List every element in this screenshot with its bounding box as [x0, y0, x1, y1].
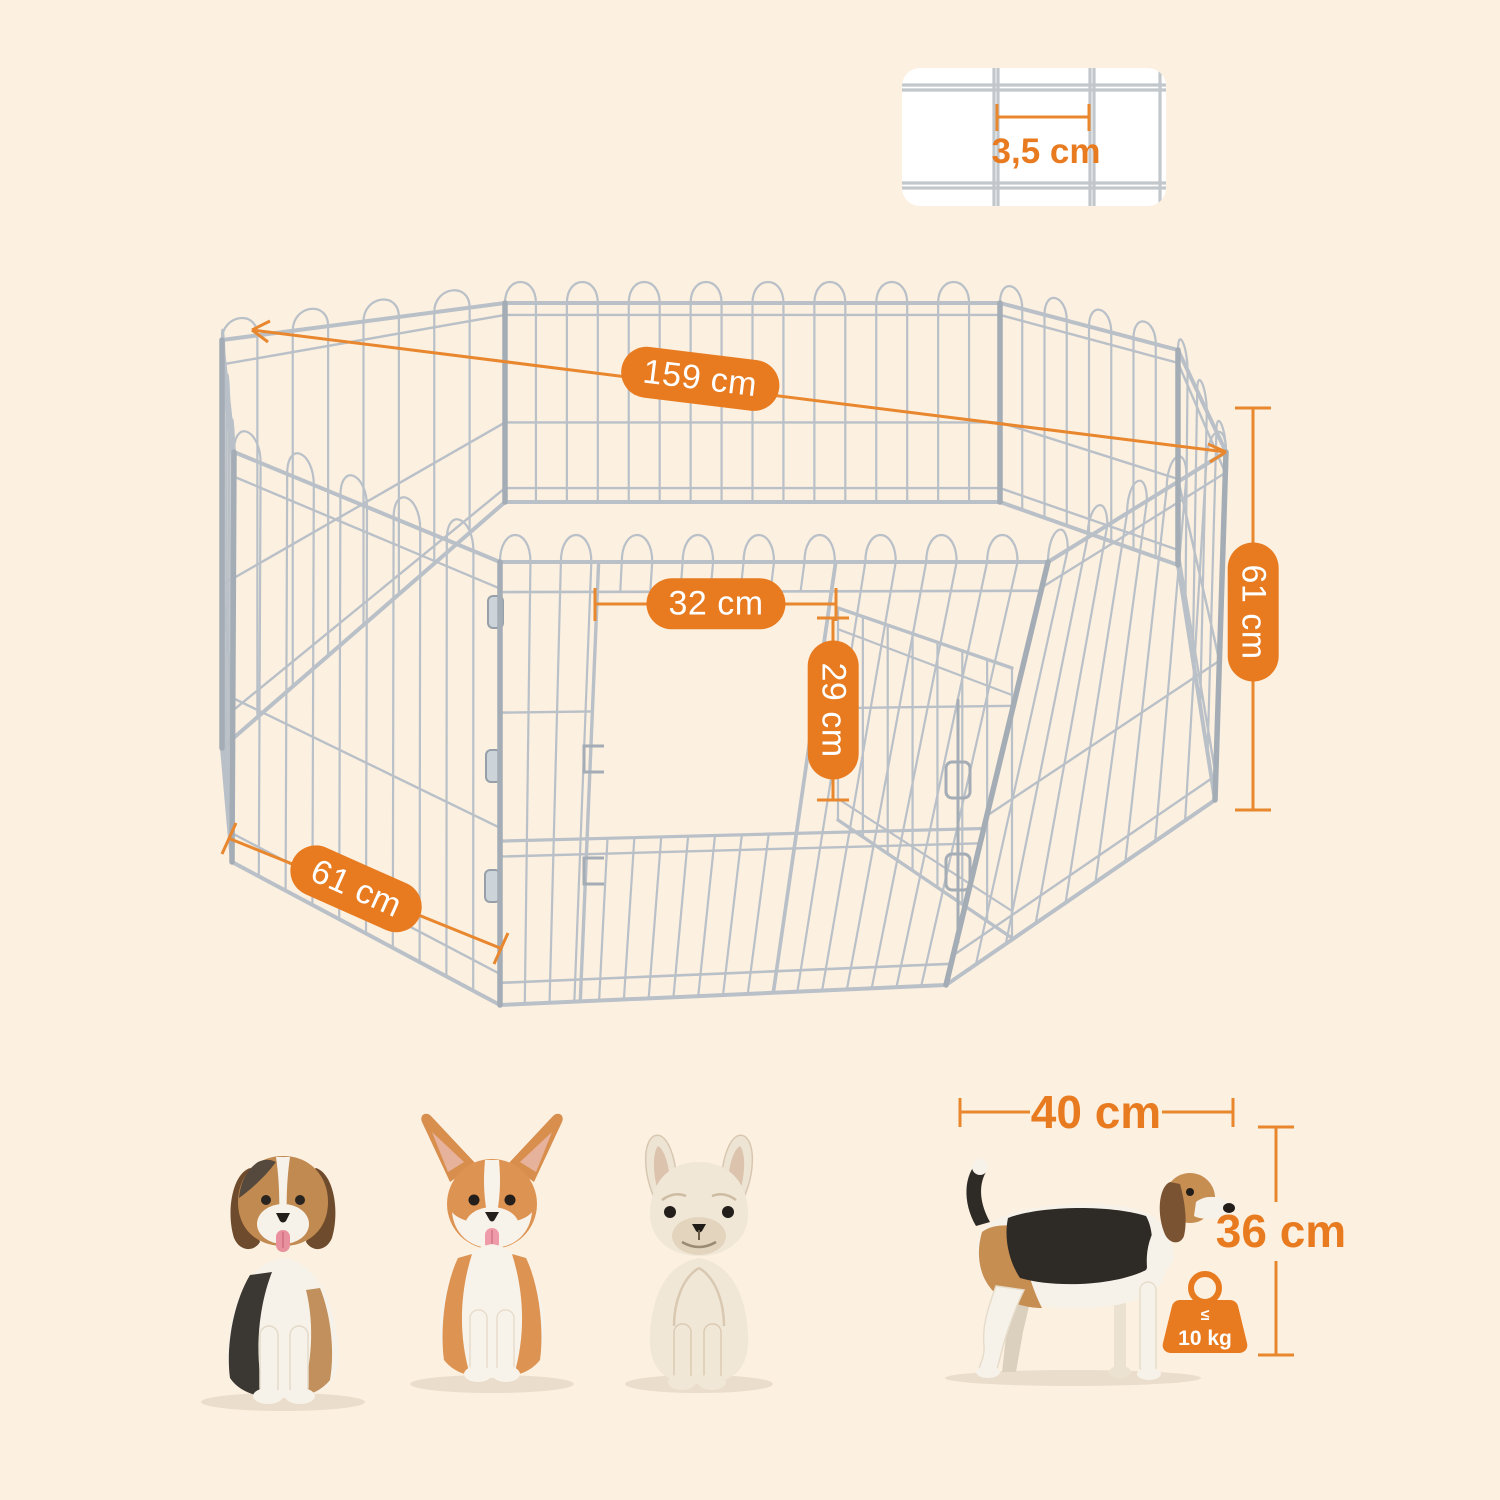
corgi-image	[410, 1114, 574, 1393]
dog-height-dimension-text: 36 cm	[1216, 1204, 1346, 1258]
product-infographic: 159 cm 32 cm 29 cm 61 cm 61 cm 3,5 cm 40…	[0, 0, 1500, 1500]
scene-artwork	[0, 0, 1500, 1500]
weight-limit-value: 10 kg	[1178, 1327, 1232, 1351]
dog-length-dimension-text: 40 cm	[1031, 1085, 1161, 1139]
mesh-gap-dimension-text: 3,5 cm	[992, 132, 1101, 172]
beagle-puppy-image	[201, 1156, 365, 1411]
panel-height-dimension-pill: 61 cm	[1227, 542, 1278, 681]
dimension-lines	[222, 104, 1294, 1355]
weight-limit-operator: ≤	[1201, 1307, 1210, 1325]
door-height-dimension-pill: 29 cm	[807, 640, 858, 779]
french-bulldog-image	[625, 1135, 773, 1393]
door-width-dimension-pill: 32 cm	[646, 578, 785, 629]
